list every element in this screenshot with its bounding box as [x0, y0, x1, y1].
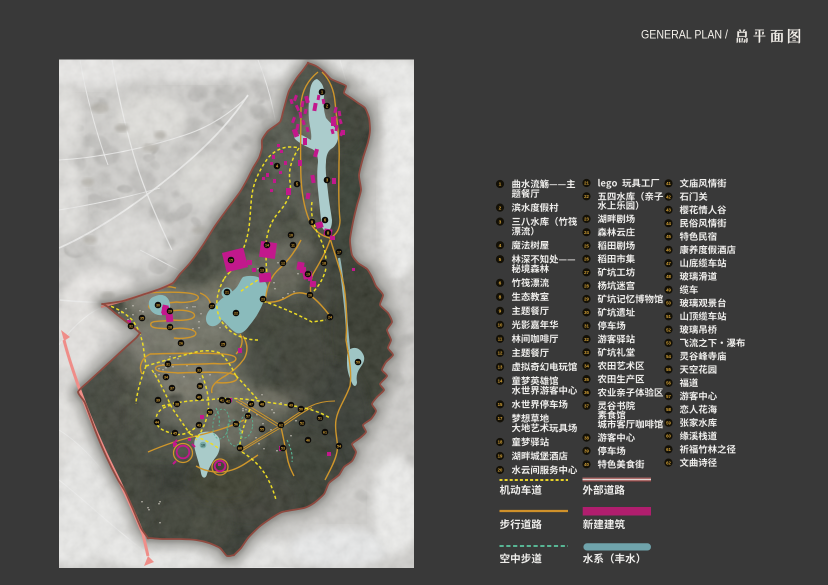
svg-text:28: 28 — [168, 325, 172, 329]
svg-text:53: 53 — [281, 446, 285, 450]
svg-text:23: 23 — [261, 297, 265, 301]
svg-text:9: 9 — [499, 309, 502, 315]
svg-text:62: 62 — [666, 460, 671, 465]
svg-text:31: 31 — [166, 362, 170, 366]
svg-text:52: 52 — [300, 421, 304, 425]
svg-text:49: 49 — [666, 287, 671, 292]
svg-text:13: 13 — [498, 365, 503, 370]
svg-text:21: 21 — [584, 181, 589, 186]
svg-text:61: 61 — [666, 447, 671, 452]
svg-text:19: 19 — [498, 454, 503, 459]
svg-text:54: 54 — [666, 354, 671, 359]
svg-text:41: 41 — [220, 398, 224, 402]
svg-text:57: 57 — [246, 414, 250, 418]
svg-text:48: 48 — [666, 274, 671, 279]
svg-text:31: 31 — [584, 323, 589, 328]
svg-text:49: 49 — [289, 403, 293, 407]
svg-text:32: 32 — [584, 337, 589, 342]
svg-text:30: 30 — [156, 303, 160, 307]
svg-text:33: 33 — [197, 368, 201, 372]
svg-text:54: 54 — [337, 444, 341, 448]
svg-text:46: 46 — [306, 438, 310, 442]
svg-text:30: 30 — [584, 310, 589, 315]
svg-text:44: 44 — [666, 221, 671, 226]
svg-text:62: 62 — [279, 423, 283, 427]
svg-text:11: 11 — [291, 243, 295, 247]
svg-text:58: 58 — [666, 407, 671, 412]
svg-text:42: 42 — [226, 399, 230, 403]
svg-text:40: 40 — [584, 462, 589, 467]
svg-text:27: 27 — [584, 270, 589, 275]
svg-text:43: 43 — [666, 208, 671, 213]
svg-text:45: 45 — [173, 431, 177, 435]
svg-text:51: 51 — [318, 416, 322, 420]
svg-text:1: 1 — [499, 182, 502, 188]
svg-text:13: 13 — [260, 268, 264, 272]
svg-text:28: 28 — [584, 283, 589, 288]
svg-text:20: 20 — [308, 293, 312, 297]
svg-text:58: 58 — [208, 410, 212, 414]
svg-text:47: 47 — [249, 402, 253, 406]
svg-text:35: 35 — [140, 316, 144, 320]
svg-text:48: 48 — [260, 402, 264, 406]
svg-text:41: 41 — [666, 181, 671, 186]
svg-text:24: 24 — [584, 230, 589, 235]
svg-text:57: 57 — [666, 394, 671, 399]
svg-text:21: 21 — [225, 290, 229, 294]
svg-text:17: 17 — [337, 250, 341, 254]
svg-text:34: 34 — [164, 375, 168, 379]
svg-text:3: 3 — [499, 219, 502, 225]
svg-text:56: 56 — [234, 422, 238, 426]
svg-text:23: 23 — [584, 217, 589, 222]
svg-text:17: 17 — [498, 416, 503, 421]
svg-text:25: 25 — [221, 342, 225, 346]
svg-text:10: 10 — [289, 233, 293, 237]
svg-text:53: 53 — [666, 341, 671, 346]
svg-text:50: 50 — [666, 301, 671, 306]
svg-text:32: 32 — [129, 324, 133, 328]
svg-text:51: 51 — [666, 314, 671, 319]
svg-text:18: 18 — [498, 440, 503, 445]
svg-text:50: 50 — [299, 407, 303, 411]
svg-text:4: 4 — [499, 243, 502, 249]
svg-text:12: 12 — [498, 351, 503, 356]
svg-text:10: 10 — [201, 443, 205, 447]
svg-text:35: 35 — [584, 377, 589, 382]
svg-text:8: 8 — [499, 295, 502, 301]
svg-text:14: 14 — [498, 379, 503, 384]
svg-text:56: 56 — [666, 381, 671, 386]
svg-text:38: 38 — [175, 402, 179, 406]
svg-text:61: 61 — [323, 430, 327, 434]
svg-text:22: 22 — [584, 194, 589, 199]
svg-text:11: 11 — [498, 337, 503, 342]
svg-text:2: 2 — [499, 205, 502, 211]
svg-text:25: 25 — [584, 243, 589, 248]
svg-text:47: 47 — [666, 261, 671, 266]
svg-text:55: 55 — [666, 367, 671, 372]
svg-text:38: 38 — [584, 435, 589, 440]
svg-text:33: 33 — [584, 350, 589, 355]
svg-text:59: 59 — [666, 420, 671, 425]
svg-text:24: 24 — [328, 315, 332, 319]
svg-text:6: 6 — [499, 281, 502, 287]
svg-text:5: 5 — [499, 257, 502, 263]
svg-text:GENERAL PLAN /: GENERAL PLAN / — [641, 28, 728, 42]
svg-text:19: 19 — [306, 272, 310, 276]
svg-text:46: 46 — [666, 248, 671, 253]
svg-text:26: 26 — [584, 257, 589, 262]
svg-text:37: 37 — [584, 404, 589, 409]
svg-text:20: 20 — [498, 468, 503, 473]
svg-text:52: 52 — [666, 327, 671, 332]
svg-text:12: 12 — [281, 261, 285, 265]
svg-text:15: 15 — [229, 258, 233, 262]
svg-text:18: 18 — [322, 261, 326, 265]
svg-text:45: 45 — [666, 234, 671, 239]
svg-text:15: 15 — [498, 402, 503, 407]
svg-text:36: 36 — [198, 384, 202, 388]
svg-text:60: 60 — [238, 446, 242, 450]
svg-text:29: 29 — [584, 297, 589, 302]
svg-text:43: 43 — [197, 423, 201, 427]
svg-text:29: 29 — [168, 309, 172, 313]
svg-text:39: 39 — [156, 398, 160, 402]
svg-text:14: 14 — [265, 243, 269, 247]
svg-text:27: 27 — [210, 304, 214, 308]
svg-text:60: 60 — [666, 434, 671, 439]
svg-text:34: 34 — [584, 364, 589, 369]
svg-text:22: 22 — [234, 311, 238, 315]
svg-text:37: 37 — [170, 386, 174, 390]
svg-text:10: 10 — [498, 323, 503, 328]
svg-text:39: 39 — [584, 449, 589, 454]
svg-text:59: 59 — [356, 360, 360, 364]
svg-text:26: 26 — [179, 341, 183, 345]
svg-text:42: 42 — [666, 194, 671, 199]
svg-text:40: 40 — [197, 395, 201, 399]
svg-text:55: 55 — [260, 427, 264, 431]
svg-text:36: 36 — [584, 390, 589, 395]
svg-text:44: 44 — [155, 420, 159, 424]
